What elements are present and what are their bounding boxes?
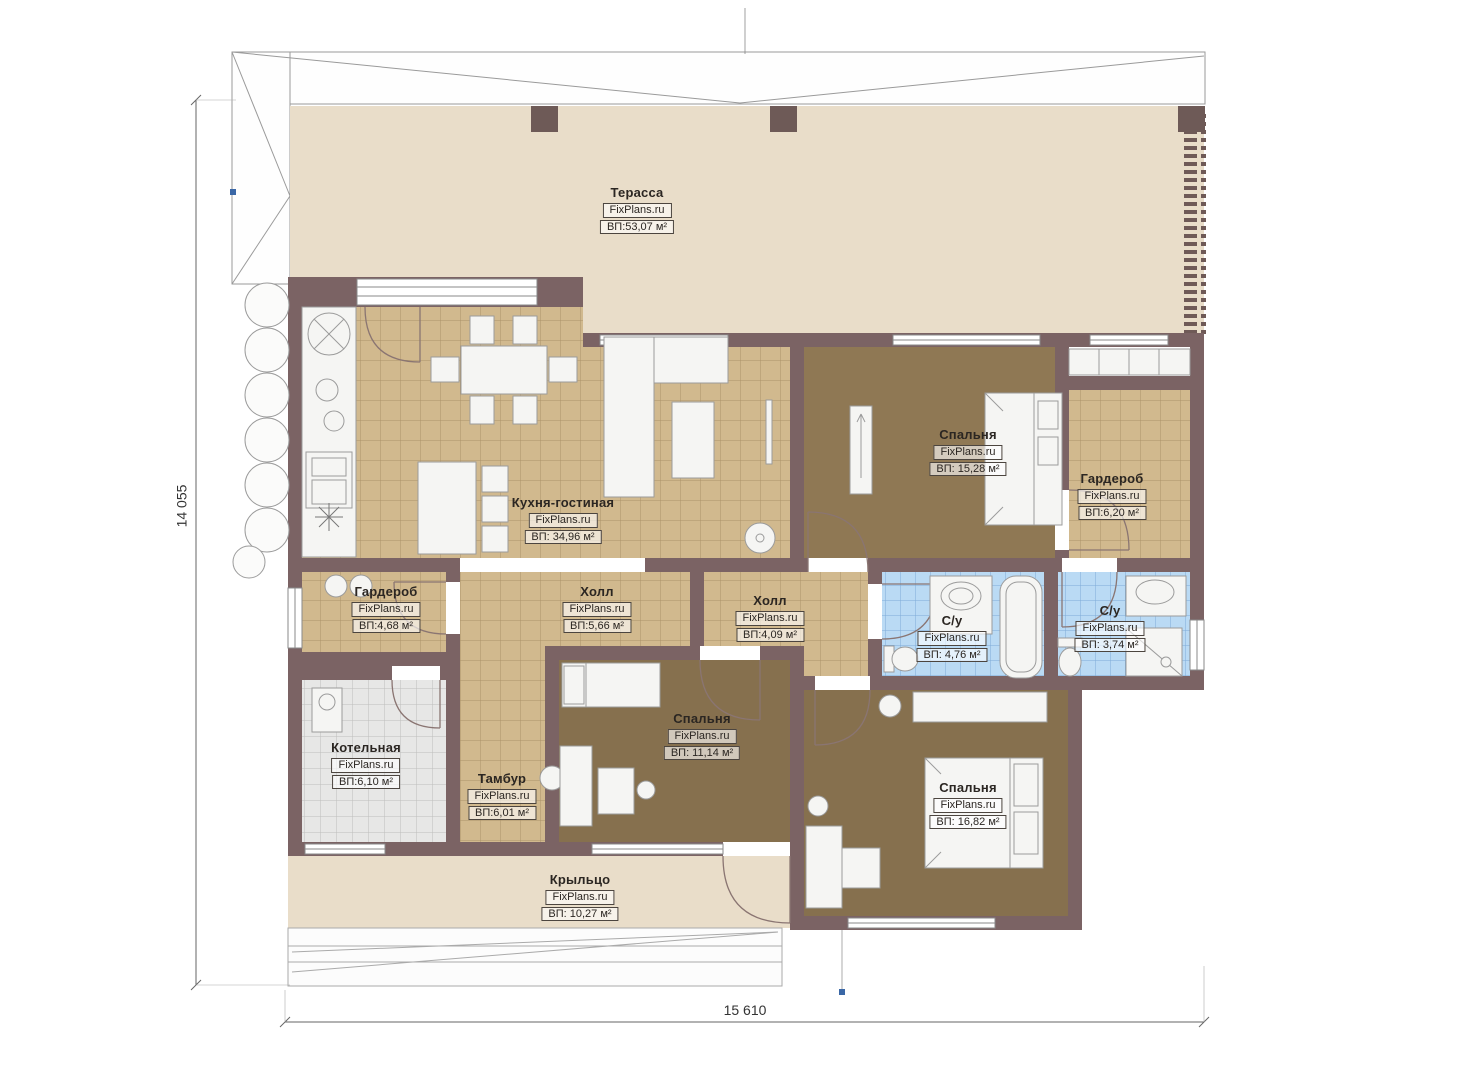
room-watermark: FixPlans.ru	[933, 798, 1002, 813]
room-watermark: FixPlans.ru	[917, 631, 986, 646]
room-name: С/у	[916, 614, 987, 629]
kitchen-island	[418, 462, 508, 554]
room-name: Спальня	[929, 781, 1006, 796]
lamp-icon	[315, 503, 343, 531]
bushes	[233, 283, 289, 578]
room-label-bedroom-mid: Спальня FixPlans.ru ВП: 11,14 м²	[664, 712, 740, 760]
kitchen-counter	[302, 307, 356, 557]
room-name: Кухня-гостиная	[512, 496, 614, 511]
sink-icon	[1136, 580, 1174, 604]
room-name: С/у	[1074, 604, 1145, 619]
room-watermark: FixPlans.ru	[351, 602, 420, 617]
room-area: ВП: 4,76 м²	[916, 648, 987, 663]
room-watermark: FixPlans.ru	[562, 602, 631, 617]
desk	[598, 768, 634, 814]
dimension-bottom: 15 610	[724, 1002, 767, 1018]
room-name: Холл	[562, 585, 631, 600]
room-label-hall-1: Холл FixPlans.ru ВП:5,66 м²	[562, 585, 631, 633]
room-name: Тамбур	[467, 772, 536, 787]
room-watermark: FixPlans.ru	[467, 789, 536, 804]
room-area: ВП:4,09 м²	[736, 628, 804, 643]
boiler-unit	[312, 688, 342, 732]
floor-plan-drawing	[0, 0, 1474, 1080]
desk	[842, 848, 880, 888]
room-area: ВП:53,07 м²	[600, 220, 674, 235]
sink-icon	[324, 411, 344, 431]
room-watermark: FixPlans.ru	[1075, 621, 1144, 636]
room-name: Гардероб	[351, 585, 420, 600]
room-area: ВП: 16,82 м²	[929, 815, 1006, 830]
room-area: ВП: 3,74 м²	[1074, 638, 1145, 653]
room-name: Терасса	[600, 186, 674, 201]
room-label-kitchen-living: Кухня-гостиная FixPlans.ru ВП: 34,96 м²	[512, 496, 614, 544]
closet	[806, 826, 842, 908]
room-label-hall-2: Холл FixPlans.ru ВП:4,09 м²	[735, 594, 804, 642]
room-label-boiler: Котельная FixPlans.ru ВП:6,10 м²	[331, 741, 401, 789]
wardrobe	[913, 692, 1047, 722]
room-watermark: FixPlans.ru	[602, 203, 671, 218]
room-watermark: FixPlans.ru	[545, 890, 614, 905]
room-name: Спальня	[929, 428, 1006, 443]
room-name: Спальня	[664, 712, 740, 727]
room-area: ВП:6,20 м²	[1078, 506, 1146, 521]
chair	[808, 796, 828, 816]
room-watermark: FixPlans.ru	[735, 611, 804, 626]
room-label-bedroom-top: Спальня FixPlans.ru ВП: 15,28 м²	[929, 428, 1006, 476]
room-label-bath-1: С/у FixPlans.ru ВП: 4,76 м²	[916, 614, 987, 662]
room-name: Гардероб	[1077, 472, 1146, 487]
chair	[637, 781, 655, 799]
dimension-left: 14 055	[173, 485, 189, 528]
room-watermark: FixPlans.ru	[331, 758, 400, 773]
room-area: ВП: 34,96 м²	[524, 530, 601, 545]
room-area: ВП:6,10 м²	[332, 775, 400, 790]
floor-plan: Терасса FixPlans.ru ВП:53,07 м² Кухня-го…	[0, 0, 1474, 1080]
room-label-porch: Крыльцо FixPlans.ru ВП: 10,27 м²	[541, 873, 618, 921]
dining-table	[461, 346, 547, 394]
room-label-bedroom-bottom: Спальня FixPlans.ru ВП: 16,82 м²	[929, 781, 1006, 829]
pergola-screen	[1184, 112, 1206, 338]
room-watermark: FixPlans.ru	[528, 513, 597, 528]
room-label-wardrobe-left: Гардероб FixPlans.ru ВП:4,68 м²	[351, 585, 420, 633]
closet	[560, 746, 592, 826]
room-label-terrace: Терасса FixPlans.ru ВП:53,07 м²	[600, 186, 674, 234]
room-watermark: FixPlans.ru	[667, 729, 736, 744]
room-area: ВП: 11,14 м²	[664, 746, 740, 761]
room-name: Крыльцо	[541, 873, 618, 888]
room-label-bath-2: С/у FixPlans.ru ВП: 3,74 м²	[1074, 604, 1145, 652]
room-area: ВП: 10,27 м²	[541, 907, 618, 922]
wardrobe-right-shelf	[1069, 349, 1190, 375]
coffee-table	[672, 402, 714, 478]
porch-floor	[288, 856, 790, 928]
room-area: ВП:5,66 м²	[563, 619, 631, 634]
room-name: Холл	[735, 594, 804, 609]
room-label-wardrobe-right: Гардероб FixPlans.ru ВП:6,20 м²	[1077, 472, 1146, 520]
room-watermark: FixPlans.ru	[1077, 489, 1146, 504]
room-watermark: FixPlans.ru	[933, 445, 1002, 460]
room-area: ВП:6,01 м²	[468, 806, 536, 821]
room-area: ВП: 15,28 м²	[929, 462, 1006, 477]
room-label-tambour: Тамбур FixPlans.ru ВП:6,01 м²	[467, 772, 536, 820]
room-name: Котельная	[331, 741, 401, 756]
room-area: ВП:4,68 м²	[352, 619, 420, 634]
tv	[766, 400, 772, 464]
sink-icon	[316, 379, 338, 401]
porch-steps	[288, 928, 782, 986]
